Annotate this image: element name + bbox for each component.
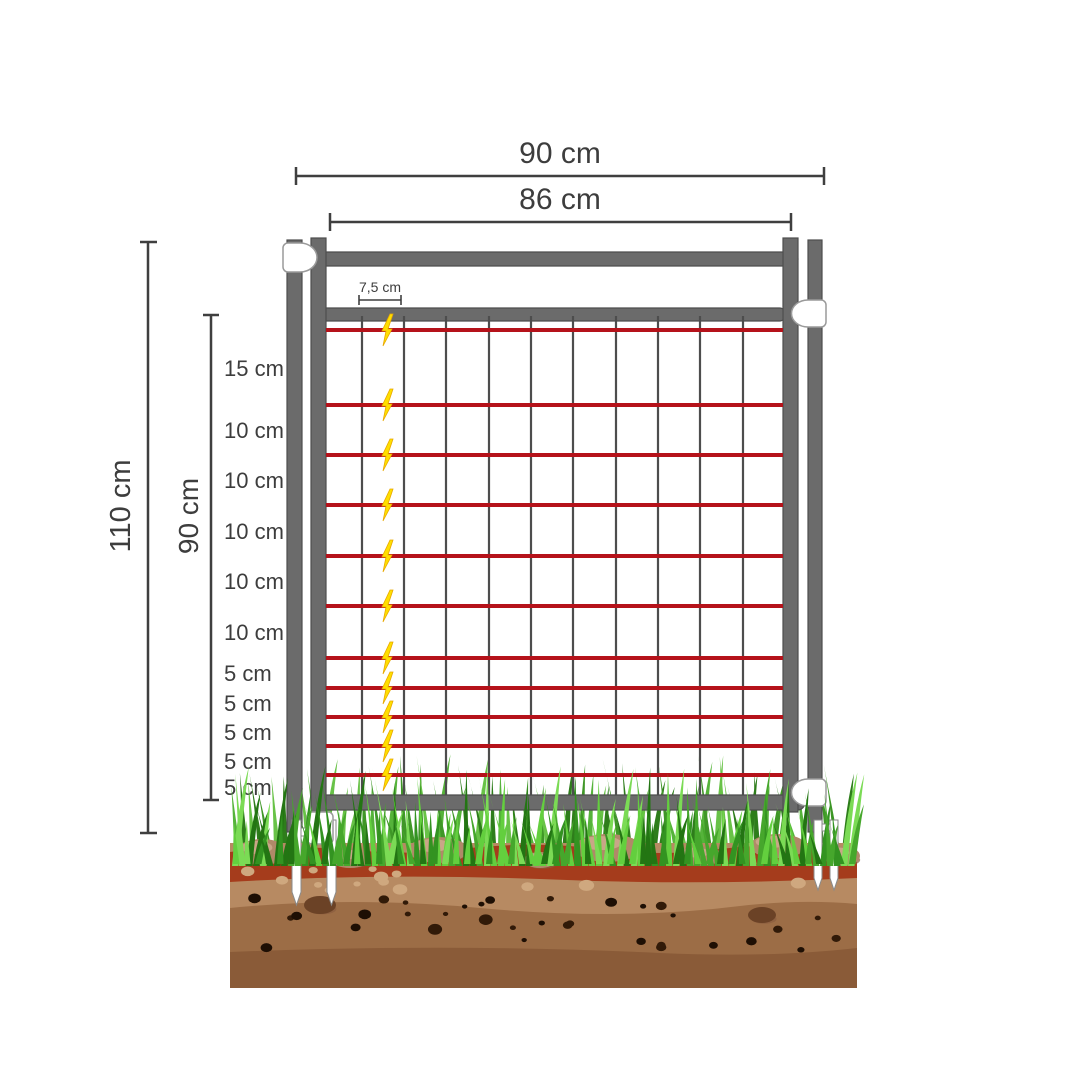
soil-speckle	[670, 913, 675, 917]
soil-pebble	[791, 878, 806, 889]
wire-gap-labels: 15 cm10 cm10 cm10 cm10 cm10 cm5 cm5 cm5 …	[224, 356, 284, 800]
lightning-bolt-icon	[382, 730, 393, 762]
dimension-label-width-inner: 86 cm	[519, 183, 601, 216]
soil-pebble	[241, 867, 254, 877]
lightning-bolt-icon	[382, 590, 393, 622]
left-anchor-post	[287, 240, 302, 832]
soil-speckle	[443, 912, 448, 916]
grass-front-layer	[232, 766, 864, 866]
dimension-width-inner: 86 cm	[330, 183, 791, 231]
soil-pebble	[579, 880, 594, 891]
gate-bottom-rail	[315, 795, 805, 810]
left-top-hinge	[283, 243, 317, 272]
soil-pebble	[314, 882, 322, 888]
gate-left-post	[311, 238, 326, 815]
wire-gap-label: 10 cm	[224, 418, 284, 443]
wire-gap-label: 10 cm	[224, 569, 284, 594]
soil-speckle	[797, 947, 804, 953]
lightning-bolt-icon	[382, 759, 393, 791]
soil-speckle	[521, 938, 526, 942]
wire-gap-label: 10 cm	[224, 519, 284, 544]
soil-pebble	[521, 882, 533, 891]
lightning-bolt-icon	[382, 540, 393, 572]
soil-speckle	[291, 912, 302, 920]
right-bottom-connector	[792, 779, 826, 806]
gate-second-rail	[312, 308, 786, 321]
lightning-bolt-icon	[382, 489, 393, 521]
soil-speckle	[636, 938, 646, 945]
dimension-height-mesh: 90 cm	[173, 315, 219, 800]
soil-speckle	[640, 904, 646, 909]
lightning-bolt-icon	[382, 672, 393, 704]
wire-gap-label: 5 cm	[224, 775, 272, 800]
soil-speckle	[773, 926, 782, 933]
wire-gap-label: 10 cm	[224, 468, 284, 493]
soil-speckle	[657, 942, 665, 948]
soil-speckle	[358, 909, 371, 919]
dimension-mesh-spacing: 7,5 cm	[359, 279, 401, 305]
gate-right-post	[783, 238, 798, 812]
wire-gap-label: 10 cm	[224, 620, 284, 645]
grass-blade	[645, 767, 652, 866]
dimension-label-height-mesh: 90 cm	[173, 478, 204, 554]
soil-speckle	[832, 935, 841, 942]
soil-pebble	[392, 871, 402, 878]
soil-speckle	[815, 916, 821, 921]
wire-gap-label: 5 cm	[224, 720, 272, 745]
soil-speckle	[746, 937, 757, 945]
diagram-canvas: 90 cm 86 cm 110 cm 90 cm 7,5 cm 15 cm10 …	[0, 0, 1080, 1080]
lightning-bolt-icons	[382, 314, 393, 791]
wire-gap-label: 5 cm	[224, 661, 272, 686]
soil-speckle	[351, 924, 361, 932]
soil-pebble	[393, 884, 408, 894]
wire-gap-label: 5 cm	[224, 749, 272, 774]
right-middle-connector	[792, 300, 826, 327]
soil-speckle	[510, 925, 516, 930]
soil-speckle	[709, 942, 718, 949]
soil-speckle	[462, 905, 467, 909]
stone	[748, 907, 776, 923]
lightning-bolt-icon	[382, 642, 393, 674]
soil-speckle	[605, 898, 617, 907]
lightning-bolt-icon	[382, 701, 393, 733]
lightning-bolt-icon	[382, 389, 393, 421]
lightning-bolt-icon	[382, 439, 393, 471]
soil-pebble	[353, 881, 360, 886]
soil-speckle	[405, 912, 411, 917]
soil-speckle	[248, 893, 261, 903]
soil-speckle	[428, 924, 442, 935]
dimension-height-total: 110 cm	[105, 242, 157, 833]
dimension-label-height-total: 110 cm	[105, 460, 137, 553]
grass-blade	[666, 773, 673, 866]
dimension-width-outer: 90 cm	[296, 137, 824, 185]
wire-gap-label: 5 cm	[224, 691, 272, 716]
soil-pebble	[374, 872, 388, 882]
electric-wires	[326, 330, 783, 775]
wire-gap-label: 15 cm	[224, 356, 284, 381]
dimension-label-width-outer: 90 cm	[519, 137, 601, 170]
electric-fence-gate-diagram: 90 cm 86 cm 110 cm 90 cm 7,5 cm 15 cm10 …	[0, 0, 1080, 1080]
soil-speckle	[566, 920, 574, 926]
soil-speckle	[485, 896, 495, 904]
soil-pebble	[309, 867, 318, 873]
soil-speckle	[479, 914, 493, 925]
soil-pebble	[369, 866, 377, 872]
soil-speckle	[261, 943, 273, 952]
soil-speckle	[547, 896, 554, 901]
soil-speckle	[539, 921, 545, 926]
soil-speckle	[379, 895, 390, 903]
soil-speckle	[656, 902, 667, 910]
soil-pebble	[276, 876, 288, 885]
gate-top-rail	[300, 252, 798, 266]
soil-speckle	[403, 900, 409, 904]
soil-speckle	[478, 902, 484, 907]
dimension-label-mesh-spacing: 7,5 cm	[359, 279, 401, 295]
right-anchor-post	[808, 240, 822, 832]
